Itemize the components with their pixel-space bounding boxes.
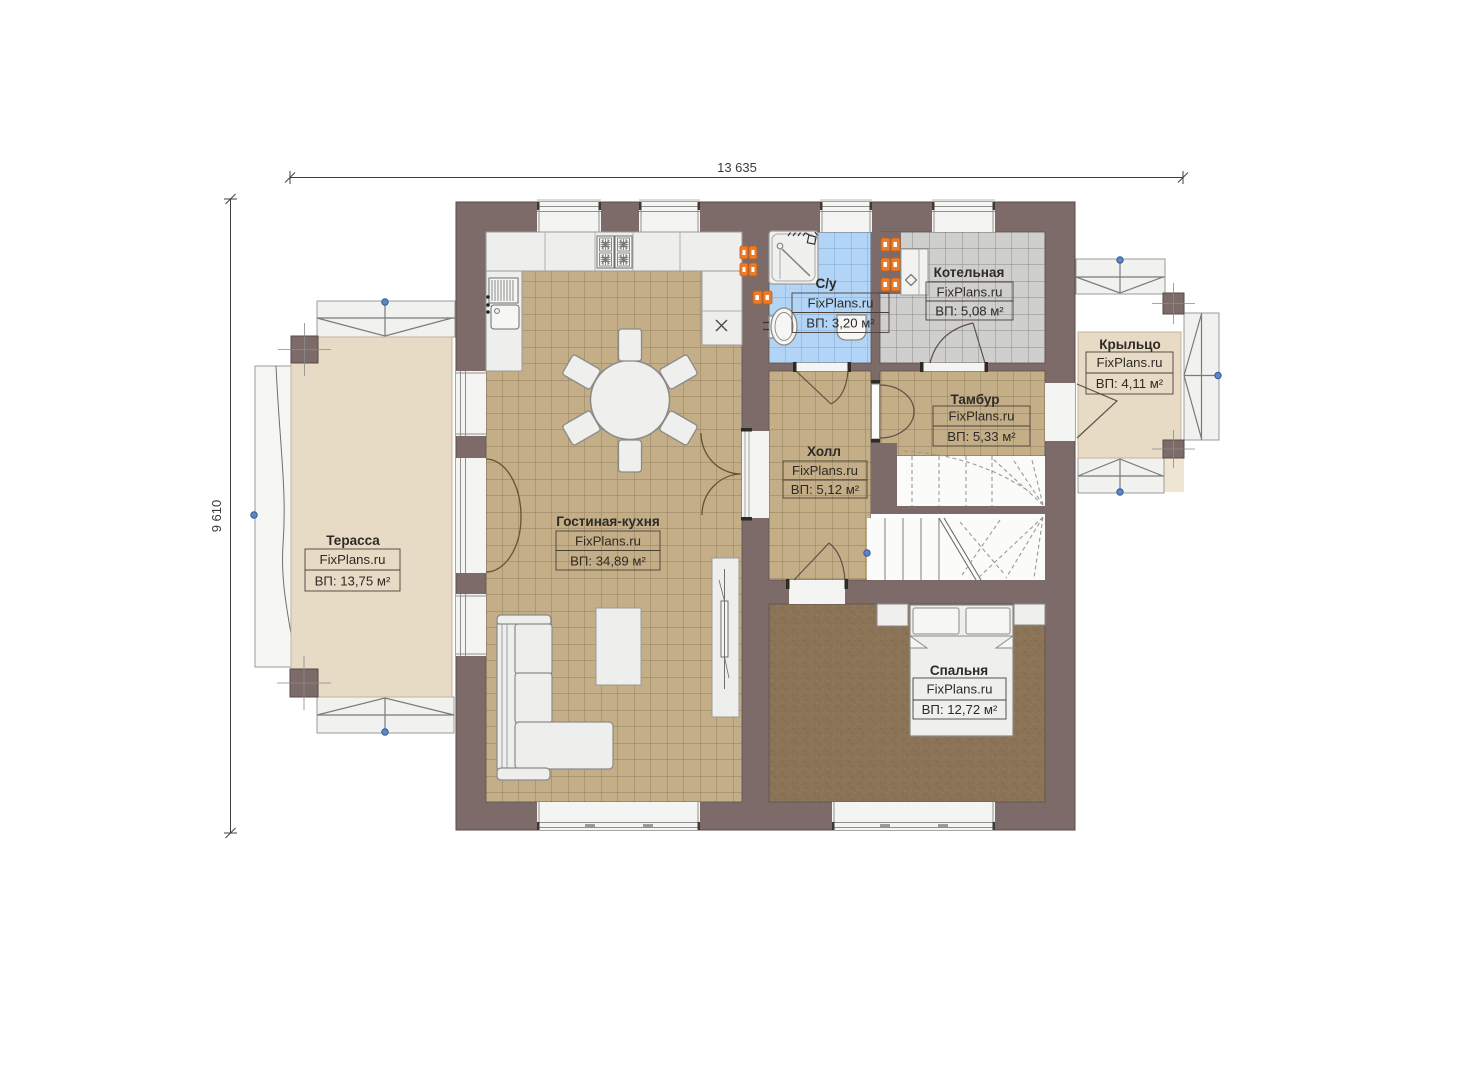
svg-text:Крыльцо: Крыльцо [1099,337,1160,352]
svg-text:FixPlans.ru: FixPlans.ru [949,409,1015,424]
svg-text:FixPlans.ru: FixPlans.ru [927,682,993,697]
svg-text:Тамбур: Тамбур [951,392,1000,407]
svg-text:Гостиная-кухня: Гостиная-кухня [556,514,659,529]
svg-text:ВП: 5,08 м²: ВП: 5,08 м² [935,304,1004,319]
svg-text:FixPlans.ru: FixPlans.ru [808,296,874,311]
svg-text:FixPlans.ru: FixPlans.ru [320,552,386,567]
svg-text:9 610: 9 610 [209,500,224,533]
svg-text:FixPlans.ru: FixPlans.ru [1097,355,1163,370]
svg-text:Котельная: Котельная [934,265,1005,280]
svg-text:13 635: 13 635 [717,160,757,175]
svg-text:ВП: 5,33 м²: ВП: 5,33 м² [947,429,1016,444]
svg-text:FixPlans.ru: FixPlans.ru [792,463,858,478]
svg-text:FixPlans.ru: FixPlans.ru [575,534,641,549]
svg-text:FixPlans.ru: FixPlans.ru [937,285,1003,300]
svg-text:ВП: 5,12 м²: ВП: 5,12 м² [791,482,860,497]
svg-text:С/у: С/у [815,276,837,291]
svg-text:ВП: 13,75 м²: ВП: 13,75 м² [315,574,391,589]
svg-text:Спальня: Спальня [930,663,988,678]
svg-text:Холл: Холл [807,444,841,459]
svg-text:ВП: 4,11 м²: ВП: 4,11 м² [1096,376,1164,391]
svg-text:ВП: 34,89 м²: ВП: 34,89 м² [570,554,646,569]
svg-text:ВП: 3,20 м²: ВП: 3,20 м² [806,316,875,331]
svg-text:ВП: 12,72 м²: ВП: 12,72 м² [922,702,998,717]
svg-text:Терасса: Терасса [326,533,380,548]
